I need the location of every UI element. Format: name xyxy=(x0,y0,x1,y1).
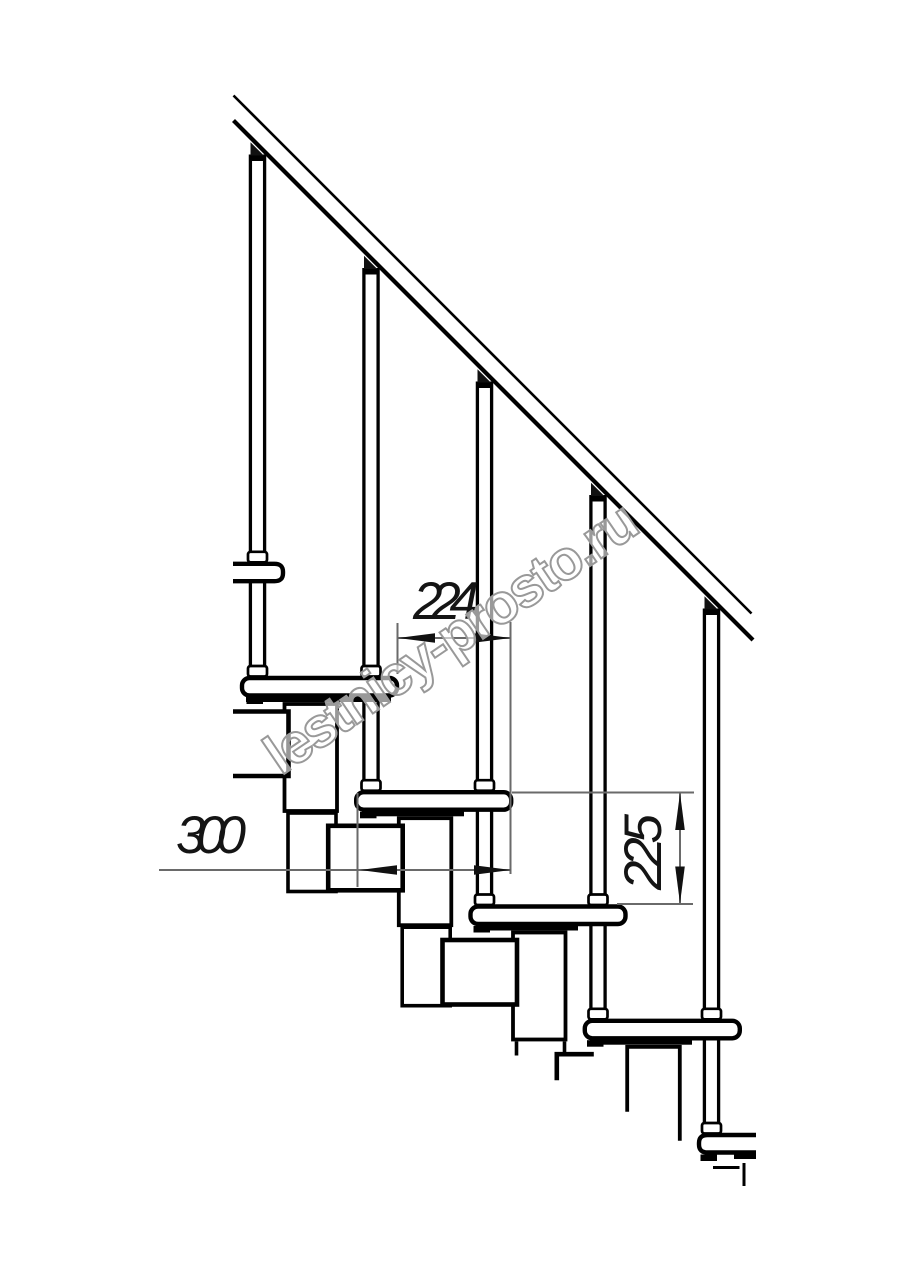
svg-text:225: 225 xyxy=(614,813,673,891)
svg-text:300: 300 xyxy=(176,806,247,865)
